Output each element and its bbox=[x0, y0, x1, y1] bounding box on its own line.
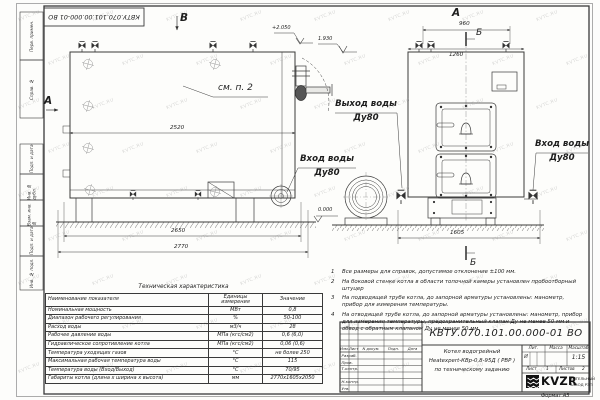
spec-cell: МПа (кгс/см2) bbox=[209, 340, 263, 349]
spec-row: Температура воды (Вход/Выход)°С70/95 bbox=[46, 366, 323, 375]
inlet-water-dn-side: Ду80 bbox=[298, 169, 356, 178]
view-mark-a-side: А bbox=[44, 96, 52, 107]
frame-side-label: Инв. № дубл. bbox=[20, 174, 43, 200]
note-item: 3На подводящей трубе котла, до запорной … bbox=[331, 295, 585, 309]
spec-cell: °С bbox=[209, 366, 263, 375]
spec-col-value: Значение bbox=[263, 294, 323, 307]
spec-cell: 50-100 bbox=[263, 315, 323, 324]
outlet-water-label: Выход воды bbox=[335, 100, 397, 109]
logo-subtitle-1: КОТЕЛЬНЫЙ bbox=[570, 377, 595, 381]
scale-value: 1:15 bbox=[567, 355, 590, 361]
dim-1605: 1605 bbox=[450, 231, 464, 237]
spec-cell: МПа (кгс/см2) bbox=[209, 332, 263, 341]
spec-row: Рабочее давление водыМПа (кгс/см2)0,6 (6… bbox=[46, 332, 323, 341]
lit-value: И bbox=[522, 355, 530, 360]
title-block-role: Пров. bbox=[342, 360, 359, 365]
spec-row: Гидравлическое сопротивление котлаМПа (к… bbox=[46, 340, 323, 349]
sheets-value: 2 bbox=[582, 367, 585, 371]
dim-2520: 2520 bbox=[170, 126, 184, 132]
format-note: Формат А3 bbox=[541, 394, 569, 399]
spec-cell: не более 250 bbox=[263, 349, 323, 358]
section-mark-b-bottom: Б bbox=[470, 259, 476, 268]
spec-cell: 70/95 bbox=[263, 366, 323, 375]
sheets-label: Листов bbox=[559, 367, 575, 371]
spec-cell: 28 bbox=[263, 323, 323, 332]
spec-col-units: Единицы измерения bbox=[209, 294, 263, 307]
frame-side-label: Инв. № подл. bbox=[20, 256, 43, 290]
title-name-line2: Heatexpert-КВр-0,8-95Д ( РВР ) bbox=[422, 359, 522, 364]
spec-col-name: Наименование показателя bbox=[46, 294, 209, 307]
revision-col-label: Подп. bbox=[384, 347, 403, 351]
inlet-water-dn-front: Ду80 bbox=[532, 154, 592, 163]
revision-col-label: Изм. bbox=[340, 347, 349, 351]
spec-row: Максимальная рабочая температура воды°С1… bbox=[46, 358, 323, 367]
view-mark-a-front: А bbox=[452, 8, 460, 19]
dim-1260: 1260 bbox=[449, 53, 463, 59]
spec-cell: Температура воды (Вход/Выход) bbox=[46, 366, 209, 375]
spec-cell: Максимальная рабочая температура воды bbox=[46, 358, 209, 367]
top-stamp-doc-number: КВТУ.070.101.00.000-01 ВО bbox=[44, 8, 144, 26]
frame-side-label: Взам. инв. № bbox=[20, 200, 43, 226]
elevation-zero: 0.000 bbox=[318, 208, 332, 213]
outlet-water-dn: Ду80 bbox=[335, 114, 397, 123]
elevation-outlet: 1.930 bbox=[318, 37, 332, 42]
elevation-top: +2.050 bbox=[272, 26, 291, 31]
revision-col-label: Дата bbox=[403, 347, 422, 351]
spec-row: Расход водым3/ч28 bbox=[46, 323, 323, 332]
frame-side-label: Справ. № bbox=[20, 60, 43, 118]
spec-cell: 2770х1605х2050 bbox=[263, 375, 323, 384]
sheet-label: Лист bbox=[526, 367, 537, 371]
dim-960: 960 bbox=[459, 22, 470, 28]
spec-cell: 115 bbox=[263, 358, 323, 367]
spec-cell: Диапазон рабочего регулирования bbox=[46, 315, 209, 324]
frame-side-label: Подп. и дата bbox=[20, 144, 43, 174]
spec-row: Диапазон рабочего регулирования%50-100 bbox=[46, 315, 323, 324]
frame-side-label: Подп. и дата bbox=[20, 226, 43, 256]
inlet-water-label-side: Вход воды bbox=[298, 155, 356, 164]
title-name-line3: по техническому заданию bbox=[422, 368, 522, 373]
spec-cell: 0,6 (6,0) bbox=[263, 332, 323, 341]
view-mark-v: В bbox=[180, 13, 188, 24]
spec-row: Габариты котла (длина х ширина х высота)… bbox=[46, 375, 323, 384]
spec-row: Температура уходящих газов°Сне более 250 bbox=[46, 349, 323, 358]
spec-row: Номинальная мощностьМВт0,8 bbox=[46, 306, 323, 315]
spec-cell: °С bbox=[209, 358, 263, 367]
spec-cell: Гидравлическое сопротивление котла bbox=[46, 340, 209, 349]
note-item: 2На боковой стенке котла в области топоч… bbox=[331, 279, 585, 293]
spec-cell: °С bbox=[209, 349, 263, 358]
see-note-label: см. п. 2 bbox=[218, 84, 253, 93]
title-block-role: Н.контр. bbox=[342, 379, 359, 384]
title-block-doc-number: КВТУ.070.101.00.000-01 ВО bbox=[422, 322, 590, 345]
spec-table-title: Техническая характеристика bbox=[45, 285, 322, 291]
dim-2650: 2650 bbox=[171, 229, 185, 235]
sheet-value: 1 bbox=[546, 367, 549, 371]
revision-col-label: Лист bbox=[349, 347, 358, 351]
spec-cell: м3/ч bbox=[209, 323, 263, 332]
lit-label: Лит. bbox=[522, 346, 545, 350]
drawing-sheet: КВТУ.070.101.00.000-01 ВО В А +2.050 1.9… bbox=[0, 0, 600, 400]
logo-subtitle-2: ЗАВОД РЭП bbox=[570, 383, 593, 387]
dim-2770: 2770 bbox=[174, 245, 188, 251]
spec-cell: 0,06 (0,6) bbox=[263, 340, 323, 349]
spec-cell: 0,8 bbox=[263, 306, 323, 315]
spec-table-body: Номинальная мощностьМВт0,8Диапазон рабоч… bbox=[46, 306, 323, 383]
spec-cell: Рабочее давление воды bbox=[46, 332, 209, 341]
spec-cell: Номинальная мощность bbox=[46, 306, 209, 315]
spec-cell: % bbox=[209, 315, 263, 324]
frame-side-label: Перв. примен. bbox=[20, 12, 43, 60]
inlet-water-label-front: Вход воды bbox=[532, 140, 592, 149]
spec-table: Наименование показателя Единицы измерени… bbox=[45, 293, 322, 384]
title-block-role: Разраб. bbox=[342, 353, 359, 358]
spec-cell: мм bbox=[209, 375, 263, 384]
title-name-line1: Котел водогрейный bbox=[422, 350, 522, 355]
note-item: 1Все размеры для справок, допустимое отк… bbox=[331, 269, 585, 276]
revision-col-label: N докум. bbox=[358, 347, 384, 351]
scale-label: Масштаб bbox=[567, 346, 590, 350]
title-block-role: Т.контр. bbox=[342, 366, 359, 371]
spec-cell: Температура уходящих газов bbox=[46, 349, 209, 358]
section-mark-b-top: Б bbox=[476, 29, 482, 38]
spec-cell: Расход воды bbox=[46, 323, 209, 332]
spec-cell: Габариты котла (длина х ширина х высота) bbox=[46, 375, 209, 384]
spec-cell: МВт bbox=[209, 306, 263, 315]
title-block-role: Утв. bbox=[342, 386, 359, 391]
mass-label: Масса bbox=[545, 346, 567, 350]
